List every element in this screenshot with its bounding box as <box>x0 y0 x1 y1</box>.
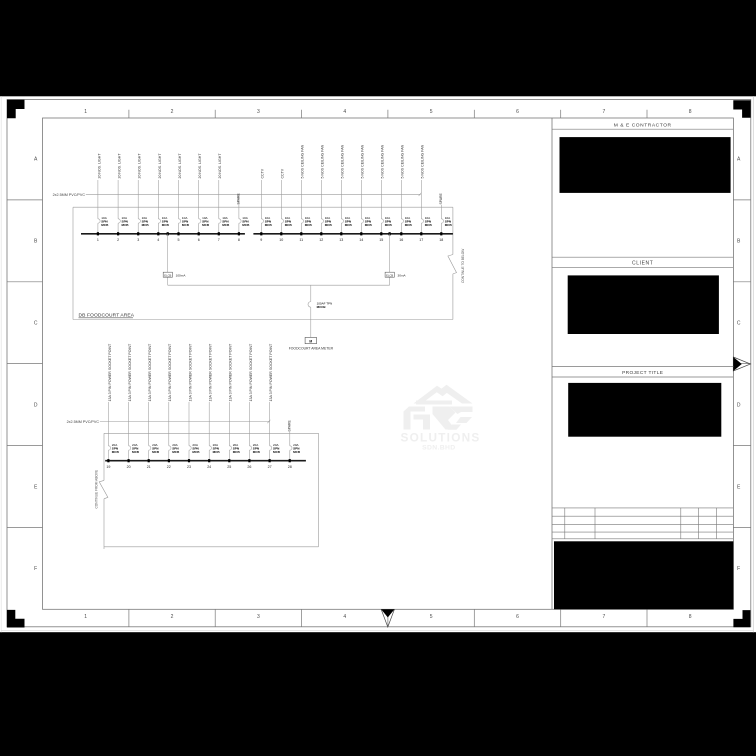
svg-text:5 NOS CEILING FAN: 5 NOS CEILING FAN <box>401 144 405 178</box>
svg-text:7: 7 <box>603 614 606 620</box>
svg-text:M: M <box>309 339 312 343</box>
svg-text:5: 5 <box>178 238 180 242</box>
svg-text:100mA: 100mA <box>176 274 187 278</box>
svg-text:26: 26 <box>247 465 251 469</box>
svg-text:9: 9 <box>260 238 262 242</box>
svg-text:11: 11 <box>299 238 303 242</box>
svg-text:14: 14 <box>359 238 363 242</box>
svg-text:3: 3 <box>257 614 260 620</box>
svg-text:30mA: 30mA <box>398 274 407 278</box>
svg-text:24: 24 <box>207 465 211 469</box>
svg-text:MCB: MCB <box>112 450 120 454</box>
svg-text:20 NOS. LIGHT: 20 NOS. LIGHT <box>97 153 101 179</box>
svg-text:SPARE: SPARE <box>287 420 291 432</box>
svg-text:ELCB: ELCB <box>386 273 393 277</box>
svg-text:3: 3 <box>137 238 139 242</box>
svg-text:20: 20 <box>127 465 131 469</box>
svg-text:F: F <box>34 566 37 572</box>
svg-text:5: 5 <box>430 614 433 620</box>
svg-text:2: 2 <box>117 238 119 242</box>
svg-text:MCB: MCB <box>265 223 273 227</box>
svg-text:FOODCOURT AREA METER: FOODCOURT AREA METER <box>289 347 334 351</box>
svg-text:SDN.BHD: SDN.BHD <box>422 445 455 452</box>
svg-text:20 NOS. LIGHT: 20 NOS. LIGHT <box>198 153 202 179</box>
svg-text:MCB: MCB <box>222 223 230 227</box>
svg-text:13A 3 PIN POWER SOCKET POINT: 13A 3 PIN POWER SOCKET POINT <box>188 343 192 402</box>
svg-text:MCB: MCB <box>365 223 373 227</box>
svg-text:5 NOS CEILING FAN: 5 NOS CEILING FAN <box>381 144 385 178</box>
svg-text:MCB: MCB <box>152 450 160 454</box>
svg-text:CCTV: CCTV <box>261 168 265 178</box>
svg-text:17: 17 <box>419 238 423 242</box>
svg-text:7: 7 <box>218 238 220 242</box>
svg-text:6: 6 <box>516 109 519 115</box>
svg-text:1: 1 <box>84 109 87 115</box>
svg-text:5 NOS CEILING FAN: 5 NOS CEILING FAN <box>341 144 345 178</box>
svg-text:18: 18 <box>439 238 443 242</box>
svg-text:15: 15 <box>379 238 383 242</box>
svg-text:MCB: MCB <box>425 223 433 227</box>
svg-text:2x2.5MM PVC/PVC: 2x2.5MM PVC/PVC <box>67 420 100 424</box>
svg-text:CLIENT: CLIENT <box>632 261 653 267</box>
svg-text:20 NOS. LIGHT: 20 NOS. LIGHT <box>158 153 162 179</box>
svg-text:13: 13 <box>339 238 343 242</box>
svg-text:2: 2 <box>171 109 174 115</box>
svg-text:MCB: MCB <box>305 223 313 227</box>
svg-text:F: F <box>737 566 740 572</box>
svg-text:MCB: MCB <box>233 450 241 454</box>
svg-text:13A 3 PIN POWER SOCKET POINT: 13A 3 PIN POWER SOCKET POINT <box>128 343 132 402</box>
svg-text:D: D <box>34 402 38 408</box>
svg-text:4: 4 <box>343 614 346 620</box>
svg-text:20 NOS. LIGHT: 20 NOS. LIGHT <box>218 153 222 179</box>
svg-text:22: 22 <box>167 465 171 469</box>
svg-text:13A 3 PIN POWER SOCKET POINT: 13A 3 PIN POWER SOCKET POINT <box>229 343 233 402</box>
svg-text:8: 8 <box>689 614 692 620</box>
svg-text:19: 19 <box>106 465 110 469</box>
svg-text:PROJECT TITLE: PROJECT TITLE <box>622 370 663 376</box>
svg-text:MCB: MCB <box>445 223 453 227</box>
svg-text:25: 25 <box>227 465 231 469</box>
svg-text:2x2.5MM PVC/PVC: 2x2.5MM PVC/PVC <box>53 193 86 197</box>
svg-text:MCB: MCB <box>325 223 333 227</box>
svg-text:23: 23 <box>187 465 191 469</box>
svg-text:1: 1 <box>84 614 87 620</box>
svg-text:CONTINUE FROM ABOVE: CONTINUE FROM ABOVE <box>95 470 99 509</box>
svg-text:MCB: MCB <box>285 223 293 227</box>
svg-text:MCB: MCB <box>182 223 190 227</box>
svg-text:4: 4 <box>157 238 159 242</box>
svg-text:28: 28 <box>288 465 292 469</box>
svg-text:MCCB: MCCB <box>317 305 327 309</box>
svg-text:27: 27 <box>268 465 272 469</box>
svg-text:MCB: MCB <box>213 450 221 454</box>
svg-text:5 NOS CEILING FAN: 5 NOS CEILING FAN <box>321 144 325 178</box>
svg-text:13A 3 PIN POWER SOCKET POINT: 13A 3 PIN POWER SOCKET POINT <box>269 343 273 402</box>
svg-text:2: 2 <box>171 614 174 620</box>
svg-text:DB FOODCOURT AREA: DB FOODCOURT AREA <box>79 312 135 318</box>
svg-text:MCB: MCB <box>242 223 250 227</box>
svg-text:5 NOS CEILING FAN: 5 NOS CEILING FAN <box>421 144 425 178</box>
svg-text:20 NOS. LIGHT: 20 NOS. LIGHT <box>118 153 122 179</box>
svg-text:8: 8 <box>238 238 240 242</box>
svg-text:MCB: MCB <box>202 223 210 227</box>
svg-text:MCB: MCB <box>101 223 109 227</box>
svg-text:3: 3 <box>257 109 260 115</box>
svg-text:MCB: MCB <box>142 223 150 227</box>
svg-text:MCB: MCB <box>273 450 281 454</box>
svg-text:M & E CONTRACTOR: M & E CONTRACTOR <box>614 122 672 128</box>
svg-text:MCB: MCB <box>345 223 353 227</box>
svg-text:MCB: MCB <box>192 450 200 454</box>
svg-text:13A 3 PIN POWER SOCKET POINT: 13A 3 PIN POWER SOCKET POINT <box>108 343 112 402</box>
svg-text:5: 5 <box>430 109 433 115</box>
svg-text:MCB: MCB <box>132 450 140 454</box>
svg-text:D: D <box>737 402 741 408</box>
svg-text:MCB: MCB <box>172 450 180 454</box>
svg-text:CONTINUE TO BELOW: CONTINUE TO BELOW <box>461 249 465 283</box>
svg-text:13A 3 PIN POWER SOCKET POINT: 13A 3 PIN POWER SOCKET POINT <box>148 343 152 402</box>
svg-text:7: 7 <box>603 109 606 115</box>
svg-text:10: 10 <box>279 238 283 242</box>
svg-text:13A 3 PIN POWER SOCKET POINT: 13A 3 PIN POWER SOCKET POINT <box>168 343 172 402</box>
svg-text:20 NOS. LIGHT: 20 NOS. LIGHT <box>178 153 182 179</box>
svg-text:16: 16 <box>399 238 403 242</box>
svg-text:CCTV: CCTV <box>281 168 285 178</box>
svg-text:1: 1 <box>97 238 99 242</box>
svg-text:SPARE: SPARE <box>439 193 443 205</box>
svg-text:SPARE: SPARE <box>237 193 241 205</box>
svg-text:MCB: MCB <box>293 450 301 454</box>
svg-text:ELCB: ELCB <box>164 273 171 277</box>
svg-text:MCB: MCB <box>162 223 170 227</box>
svg-text:6: 6 <box>516 614 519 620</box>
svg-text:20 NOS. LIGHT: 20 NOS. LIGHT <box>138 153 142 179</box>
svg-text:4: 4 <box>343 109 346 115</box>
svg-text:MCB: MCB <box>122 223 130 227</box>
svg-text:MCB: MCB <box>253 450 261 454</box>
svg-text:SOLUTIONS: SOLUTIONS <box>400 431 480 445</box>
svg-text:12: 12 <box>319 238 323 242</box>
svg-text:13A 3 PIN POWER SOCKET POINT: 13A 3 PIN POWER SOCKET POINT <box>249 343 253 402</box>
svg-text:5 NOS CEILING FAN: 5 NOS CEILING FAN <box>361 144 365 178</box>
svg-text:MCB: MCB <box>385 223 393 227</box>
svg-text:21: 21 <box>147 465 151 469</box>
svg-text:C: C <box>34 321 38 327</box>
svg-text:MCB: MCB <box>405 223 413 227</box>
svg-text:13A 3 PIN POWER SOCKET POINT: 13A 3 PIN POWER SOCKET POINT <box>209 343 213 402</box>
svg-text:5 NOS CEILING FAN: 5 NOS CEILING FAN <box>301 144 305 178</box>
svg-text:C: C <box>737 321 741 327</box>
svg-text:6: 6 <box>198 238 200 242</box>
svg-text:8: 8 <box>689 109 692 115</box>
